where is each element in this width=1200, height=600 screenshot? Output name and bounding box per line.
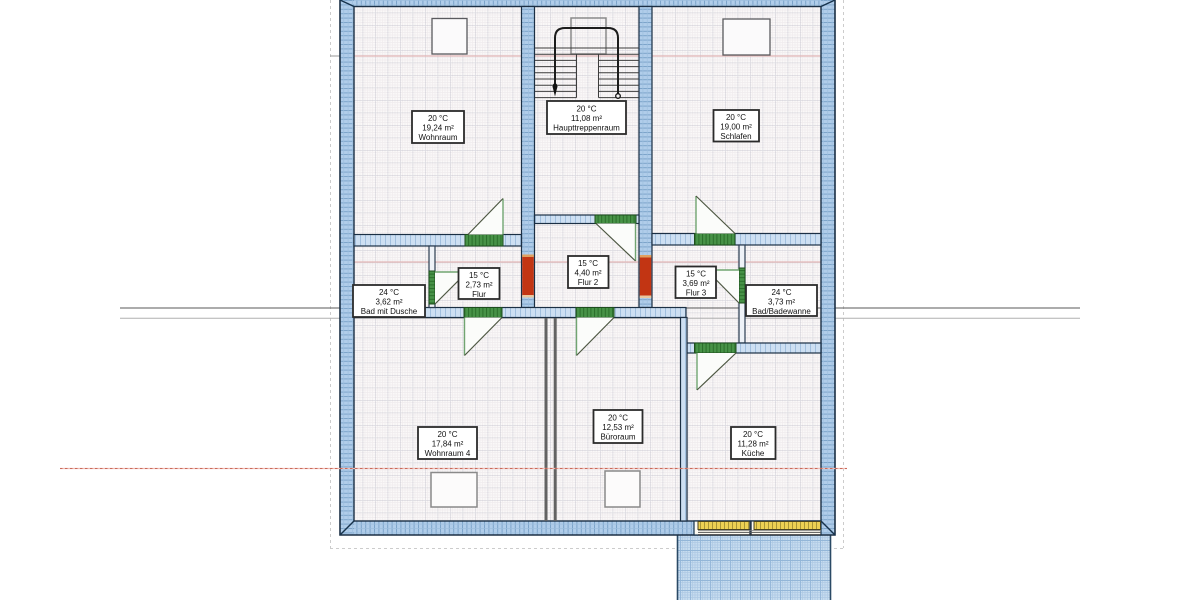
- svg-text:Bad mit Dusche: Bad mit Dusche: [361, 307, 418, 316]
- svg-text:11,08 m²: 11,08 m²: [571, 114, 602, 123]
- svg-text:Flur: Flur: [472, 290, 486, 299]
- svg-text:15 °C: 15 °C: [578, 259, 598, 268]
- svg-text:4,40 m²: 4,40 m²: [574, 269, 601, 278]
- svg-text:Wohnraum 4: Wohnraum 4: [425, 449, 471, 458]
- svg-text:17,84 m²: 17,84 m²: [432, 440, 464, 449]
- svg-text:Bad/Badewanne: Bad/Badewanne: [752, 307, 811, 316]
- svg-text:19,24 m²: 19,24 m²: [422, 124, 454, 133]
- svg-text:19,00 m²: 19,00 m²: [720, 123, 752, 132]
- svg-text:Wohnraum: Wohnraum: [419, 133, 458, 142]
- svg-text:11,28 m²: 11,28 m²: [738, 440, 769, 449]
- svg-text:Flur 2: Flur 2: [578, 278, 599, 287]
- svg-text:20 °C: 20 °C: [726, 113, 746, 122]
- svg-text:24 °C: 24 °C: [379, 288, 399, 297]
- svg-text:Büroraum: Büroraum: [600, 433, 635, 442]
- svg-text:3,69 m²: 3,69 m²: [682, 279, 709, 288]
- svg-text:24 °C: 24 °C: [771, 288, 791, 297]
- svg-text:Schlafen: Schlafen: [720, 132, 751, 141]
- svg-text:20 °C: 20 °C: [743, 430, 763, 439]
- svg-text:3,62 m²: 3,62 m²: [375, 298, 402, 307]
- svg-text:Flur 3: Flur 3: [686, 289, 707, 298]
- svg-text:20 °C: 20 °C: [608, 414, 628, 423]
- svg-text:Küche: Küche: [742, 449, 765, 458]
- svg-text:Haupttreppenraum: Haupttreppenraum: [553, 124, 620, 133]
- svg-text:15 °C: 15 °C: [686, 270, 706, 279]
- svg-text:20 °C: 20 °C: [576, 105, 596, 114]
- svg-text:3,73 m²: 3,73 m²: [768, 298, 795, 307]
- svg-text:20 °C: 20 °C: [428, 114, 448, 123]
- svg-text:15 °C: 15 °C: [469, 271, 489, 280]
- svg-text:12,53 m²: 12,53 m²: [602, 423, 634, 432]
- svg-text:2,73 m²: 2,73 m²: [465, 281, 492, 290]
- svg-text:20 °C: 20 °C: [437, 430, 457, 439]
